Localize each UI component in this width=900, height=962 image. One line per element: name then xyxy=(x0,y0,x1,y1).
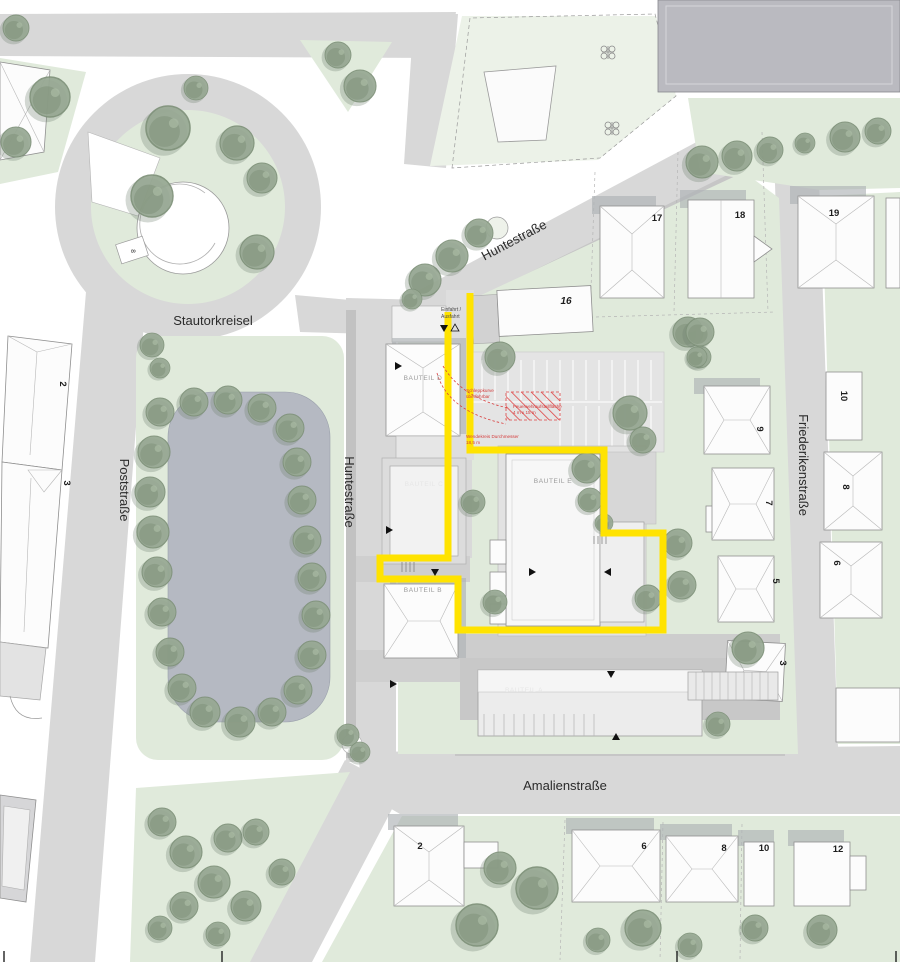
schleppkurve-note-line1: Schleppkurve xyxy=(466,388,494,393)
bauteil-c-label: BAUTEIL C xyxy=(405,481,444,488)
house-number-8b: 8 xyxy=(721,843,726,854)
house-number-17: 17 xyxy=(652,213,663,224)
site-plan-page: Schleppkurve überfahrbar Feuerwehraufste… xyxy=(0,0,900,962)
bauteil-b-building xyxy=(384,584,458,658)
house-8e xyxy=(824,452,882,530)
house-number-5: 5 xyxy=(770,578,781,584)
schleppkurve-note-line2: überfahrbar xyxy=(466,394,490,399)
house-number-18: 18 xyxy=(735,210,746,221)
house-6b xyxy=(572,830,660,902)
huntestrasse-west-label: Huntestraße xyxy=(342,456,357,528)
poststrasse-label: Poststraße xyxy=(117,459,132,522)
bauteil-a-label: BAUTEIL A xyxy=(505,687,543,694)
house-number-8e: 8 xyxy=(840,484,851,489)
wendekreis-note-line1: Wendekreis Durchmesser xyxy=(466,434,519,439)
bauteil-d-label: BAUTEIL D xyxy=(404,375,443,382)
house-number-7: 7 xyxy=(763,500,774,505)
house-5 xyxy=(718,556,774,622)
house-number-12b: 12 xyxy=(833,844,844,855)
house-number-9: 9 xyxy=(754,426,765,431)
wendekreis-note-line2: 18,5 m xyxy=(466,440,480,445)
aufstellflaeche-note-line1: Feuerwehraufstellfläche xyxy=(513,404,562,409)
house-number-10e: 10 xyxy=(838,391,849,402)
bauteil-c-building xyxy=(382,458,466,564)
einfahrt-label-line1: Einfahrt / xyxy=(441,307,462,313)
house-number-kreisel-8: 8 xyxy=(129,249,136,253)
house-number-post-2: 2 xyxy=(57,381,68,386)
house-number-2b: 2 xyxy=(417,841,422,852)
large-existing-building xyxy=(658,0,900,92)
bauteil-b-label: BAUTEIL B xyxy=(404,587,442,594)
house-6e xyxy=(820,542,882,618)
garage-row xyxy=(688,672,778,700)
house-number-6b: 6 xyxy=(641,841,646,852)
house-10e xyxy=(826,372,862,440)
bauteil-e-label: BAUTEIL E xyxy=(534,478,572,485)
friederikenstrasse-label: Friederikenstraße xyxy=(796,414,811,516)
house-number-10b: 10 xyxy=(759,843,770,854)
house-number-16: 16 xyxy=(560,296,572,307)
house-9 xyxy=(704,386,770,454)
amalienstrasse-label: Amalienstraße xyxy=(523,778,607,793)
house-number-6e: 6 xyxy=(831,560,842,565)
house-number-3: 3 xyxy=(777,660,788,665)
house-8b xyxy=(666,836,738,902)
stautorkreisel-label: Stautorkreisel xyxy=(173,313,253,328)
einfahrt-label-line2: Ausfahrt xyxy=(441,314,460,320)
house-number-post-3: 3 xyxy=(61,480,72,485)
house-number-19: 19 xyxy=(829,208,840,219)
aufstellflaeche-note-line2: 4 m x 15 m xyxy=(513,410,536,415)
site-plan: Schleppkurve überfahrbar Feuerwehraufste… xyxy=(0,0,900,962)
